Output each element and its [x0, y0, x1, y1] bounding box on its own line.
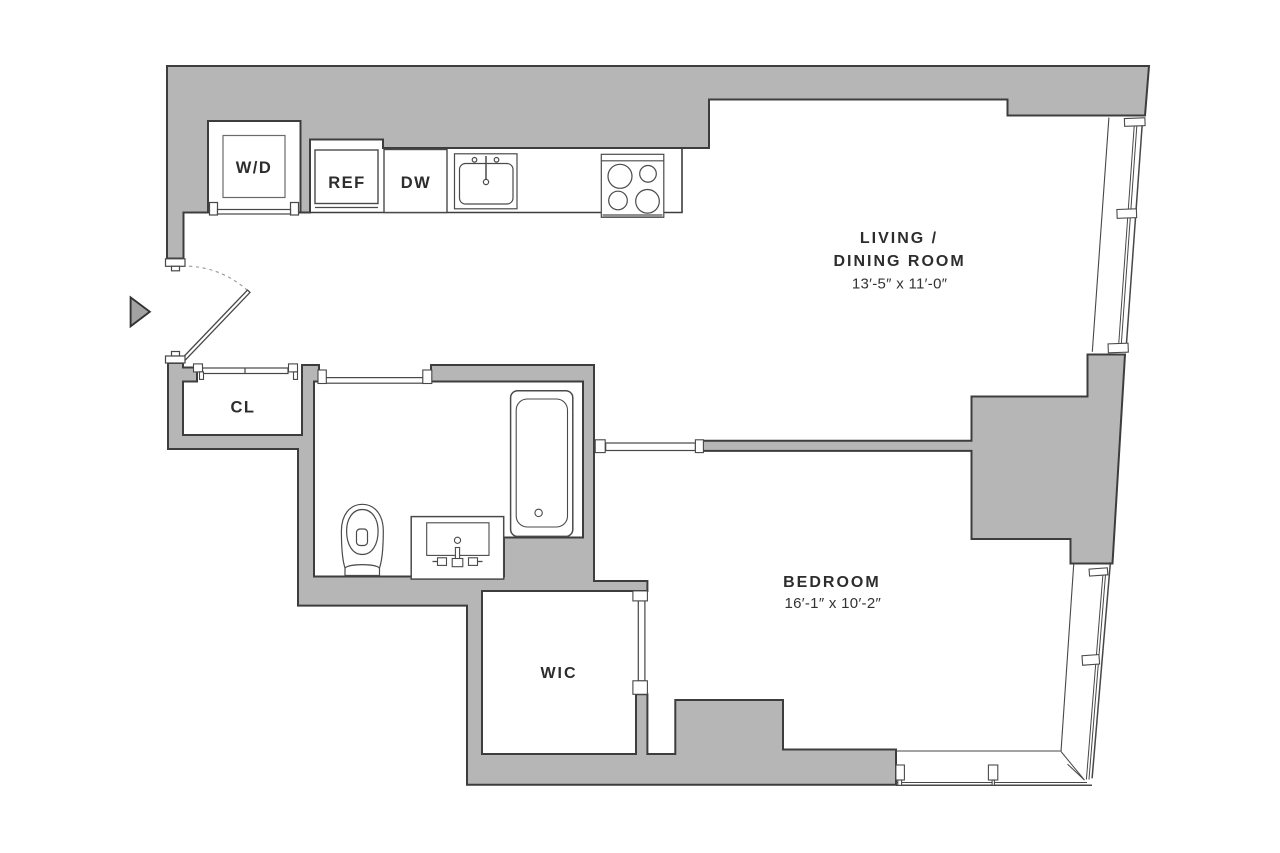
svg-text:DINING ROOM: DINING ROOM — [833, 253, 965, 270]
svg-text:DW: DW — [401, 174, 432, 192]
svg-text:REF: REF — [328, 174, 366, 192]
svg-text:WIC: WIC — [540, 665, 577, 682]
svg-text:16′-1″ x 10′-2″: 16′-1″ x 10′-2″ — [784, 595, 881, 612]
svg-text:13′-5″ x 11′-0″: 13′-5″ x 11′-0″ — [852, 276, 948, 293]
svg-text:W/D: W/D — [236, 159, 273, 177]
svg-text:BEDROOM: BEDROOM — [783, 574, 881, 591]
svg-text:LIVING /: LIVING / — [860, 230, 938, 247]
svg-text:CL: CL — [231, 399, 256, 417]
